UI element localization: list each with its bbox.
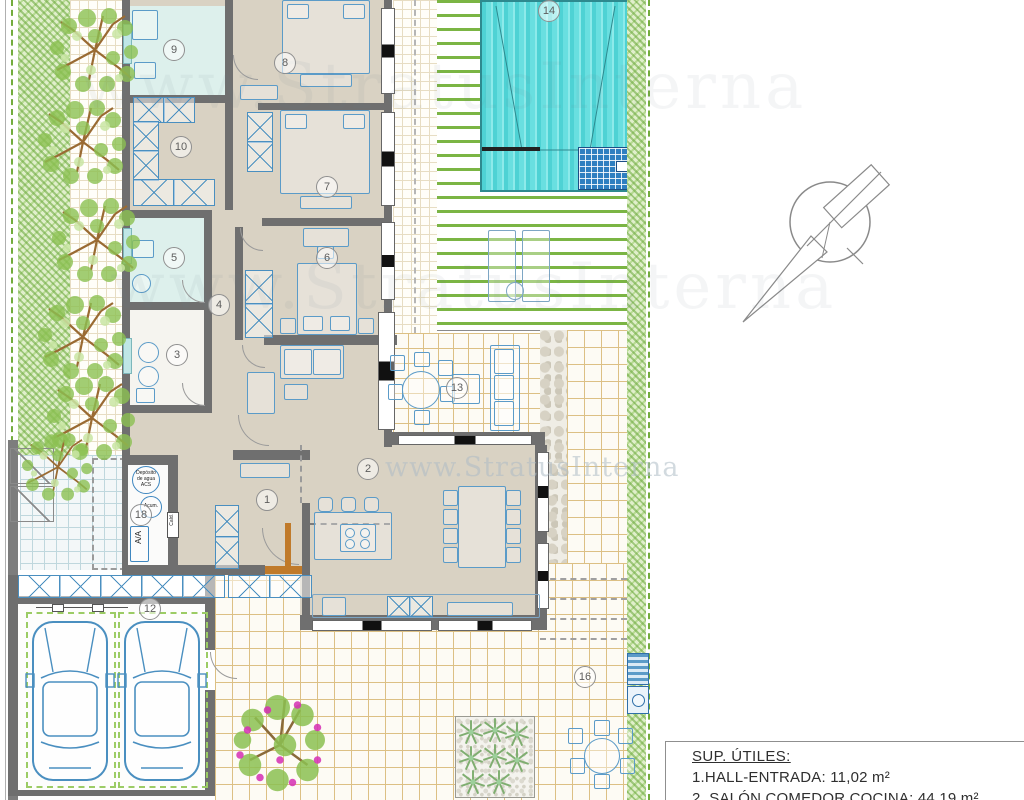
dining-chair [443,547,458,563]
pergola-panel [228,575,271,598]
ac-label: A/A [134,531,143,544]
terrace-chair [390,355,405,371]
fridge-unit [409,596,433,617]
sliding-door-living [398,435,532,445]
terrace-chair [438,360,453,376]
room-label-6: 6 [316,247,338,269]
pergola-panel [269,575,312,598]
room-label-2: 2 [357,458,379,480]
terrace-chair [414,352,430,367]
garden-chair [568,728,583,744]
wall [262,218,392,226]
front-door-leaf [285,523,291,569]
dining-table [458,486,506,568]
pergola-panel [141,575,184,598]
kitchen-sink [322,597,346,616]
pump-dial [632,694,645,707]
garden-chair [594,774,610,789]
dining-chair [443,509,458,525]
sofa [280,345,344,379]
room-label-18: 18 [130,504,152,526]
window [312,620,432,631]
wardrobe [247,141,273,172]
cushion [494,349,514,374]
bar-stool [318,497,333,512]
room-label-5: 5 [163,247,185,269]
wall [122,455,128,575]
room-label-1: 1 [256,489,278,511]
room-label-8: 8 [274,52,296,74]
sideboard [240,463,290,478]
hall-living-dashed-divider [300,445,302,503]
pergola-panel [100,575,143,598]
sofa-seat [313,349,341,375]
legend-item: 1.HALL-ENTRADA: 11,02 m² [692,769,1024,786]
patio-dashed-line [540,638,627,640]
pergola-panel [182,575,225,598]
pillow [343,4,365,19]
garden-chair [620,758,635,774]
garage-door-track [36,607,128,608]
pillow [287,4,309,19]
burner [360,539,370,549]
wall [125,565,265,575]
dining-chair [443,490,458,506]
dining-chair [506,509,521,525]
floor-plan: Depósito de agua ACS Acum. A/A Cald. [0,0,1024,800]
porch-tree [10,425,120,515]
dining-chair [506,490,521,506]
water-tank: Depósito de agua ACS [132,466,160,494]
bar-stool [341,497,356,512]
watermark-url: www.StratusInterna [385,452,679,483]
bar-stool [364,497,379,512]
garage-wall [8,575,18,792]
garage-door-handle [92,604,104,612]
patio-dashed-line [540,618,627,620]
hall-wardrobe [215,536,239,569]
terrace-table [402,371,440,409]
sliding-door-terrace [378,312,395,430]
terrace-chair [388,384,403,400]
boundary-dash-left [11,0,13,452]
hob [340,524,376,552]
window [381,112,395,206]
front-door-sill [265,566,302,574]
wardrobe [173,179,215,206]
terrace-chair [414,410,430,425]
hall-wardrobe [215,505,239,538]
pool-equipment [627,653,649,685]
patio-dashed-line [540,578,627,580]
sofa-seat [284,349,312,375]
dining-chair [443,528,458,544]
legend-title: SUP. ÚTILES: [692,748,1024,765]
wall [302,503,310,622]
room-label-4: 4 [208,294,230,316]
armchair [247,372,275,414]
dining-chair [506,528,521,544]
garage-door-handle [52,604,64,612]
pergola-panel [18,575,61,598]
ac-unit: A/A [130,526,149,562]
room-label-16: 16 [574,666,596,688]
garden-chair [618,728,633,744]
room-label-14: 14 [538,0,560,22]
burner [345,539,355,549]
garage-wall [8,790,215,796]
wall [233,450,310,460]
desk [303,228,349,247]
room-label-12: 12 [139,598,161,620]
burner [360,528,370,538]
water-tank-label: Depósito de agua ACS [133,471,159,488]
room-label-13: 13 [446,377,468,399]
garden-chair [570,758,585,774]
boiler-label: Cald. [169,514,175,526]
patio-east-strip [567,330,627,563]
boundary-line-left [5,0,6,800]
legend-item: 2. SALÓN COMEDOR COCINA: 44,19 m² [692,790,1024,800]
window [438,620,532,631]
room-label-7: 7 [316,176,338,198]
planter-plants [455,716,533,796]
car [25,616,115,786]
garden-chair [594,720,610,736]
cushion [494,375,514,400]
room-label-10: 10 [170,136,192,158]
burner [345,528,355,538]
sideboard [447,602,513,616]
cushion [494,401,514,426]
room-label-9: 9 [163,39,185,61]
flowering-tree [225,685,335,800]
garden-table [584,738,620,774]
fridge-unit [387,596,411,617]
pool-pump [627,686,649,714]
dining-chair [506,547,521,563]
patio-dashed-line [540,598,627,600]
legend-box: SUP. ÚTILES: 1.HALL-ENTRADA: 11,02 m² 2.… [665,741,1024,800]
room-label-3: 3 [166,344,188,366]
outdoor-sofa [490,345,520,431]
coffee-table [284,384,308,400]
car [117,616,207,786]
watermark-large: www.StratusInterna [80,50,807,124]
pergola-panel [59,575,102,598]
boiler: Cald. [167,512,179,538]
